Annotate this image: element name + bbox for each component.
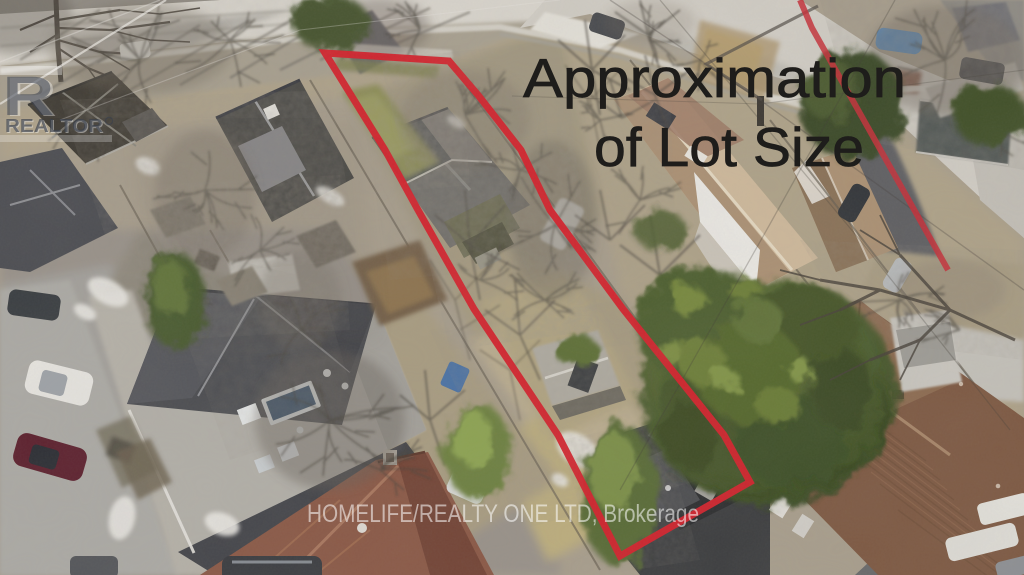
svg-text:Approximation: Approximation <box>523 47 906 109</box>
svg-text:REALTOR: REALTOR <box>5 116 103 136</box>
svg-text:HOMELIFE/REALTY ONE LTD, Brok: HOMELIFE/REALTY ONE LTD, Brokerage <box>307 500 699 528</box>
svg-text:of Lot Size: of Lot Size <box>594 116 864 178</box>
